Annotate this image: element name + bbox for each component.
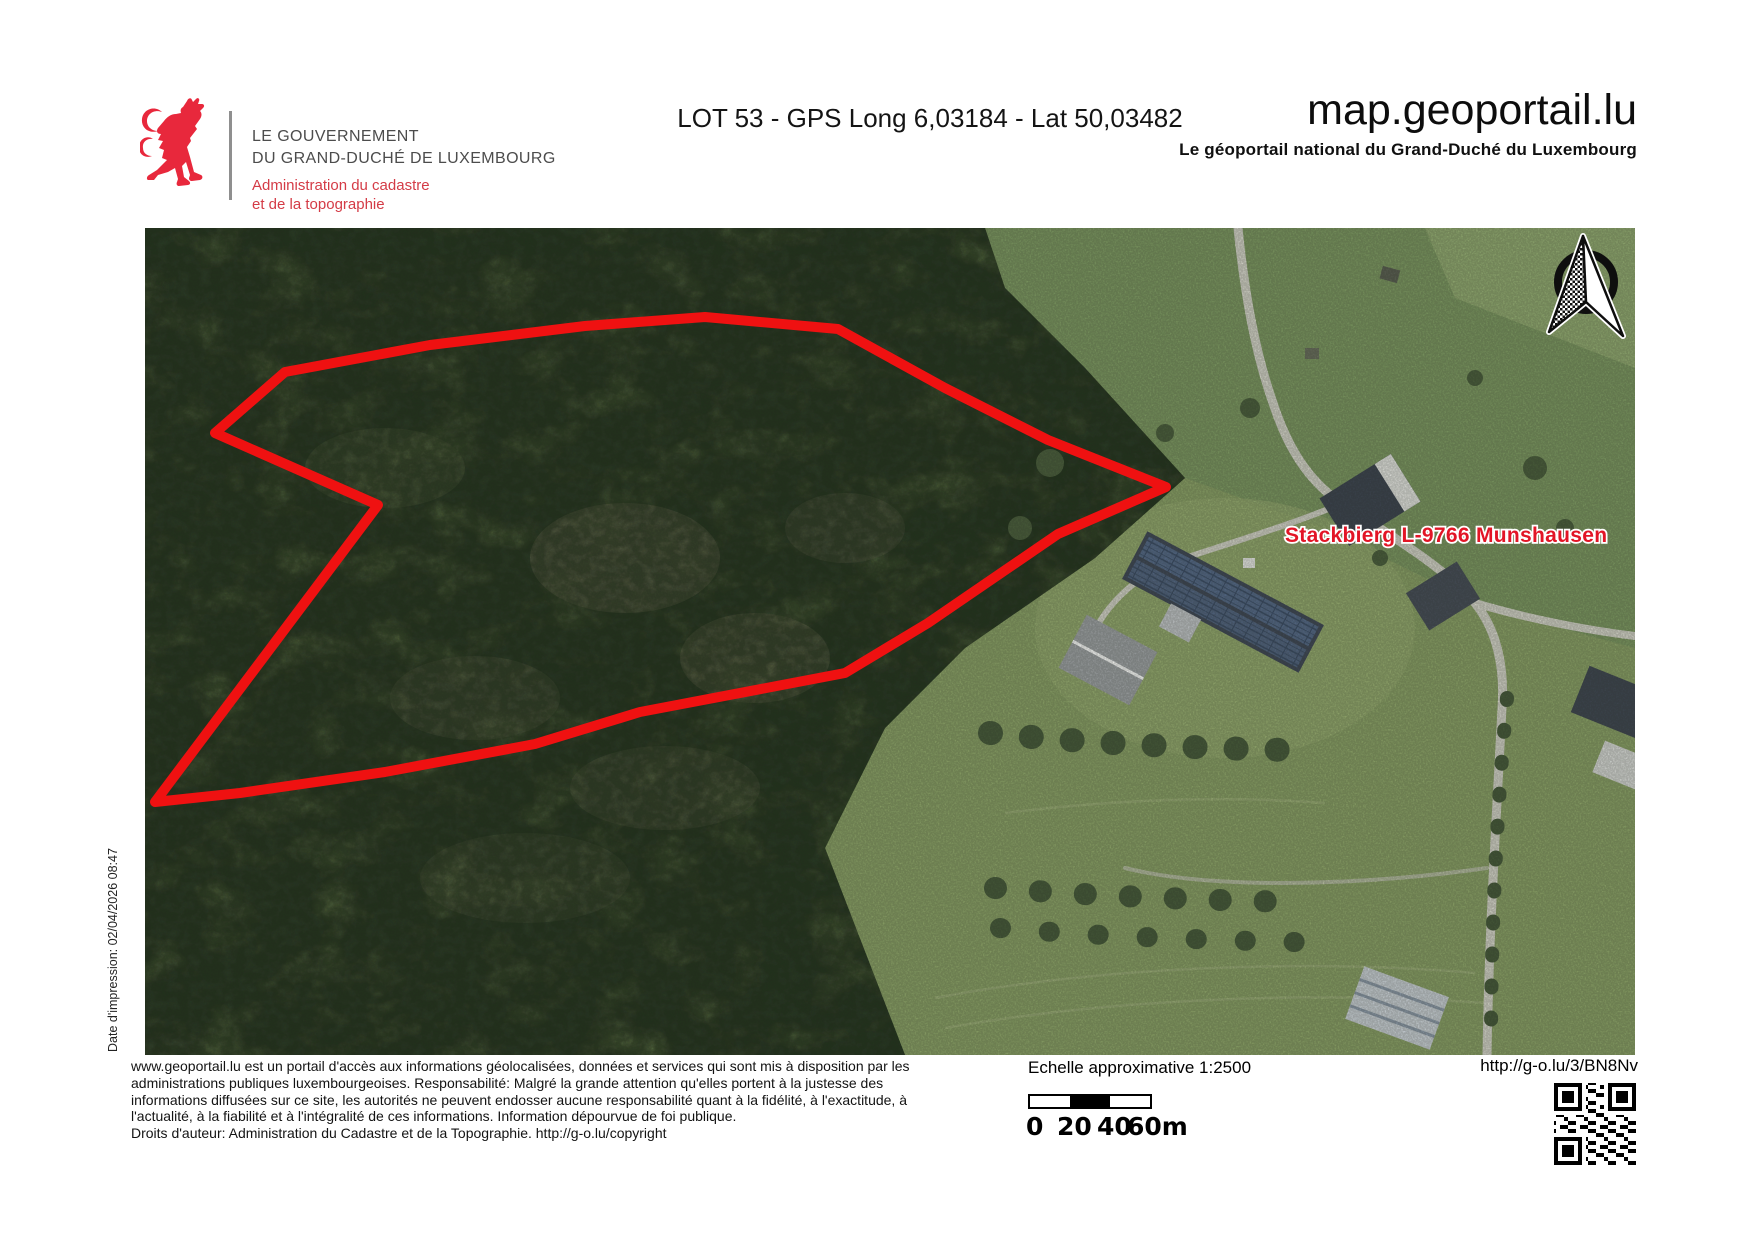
short-url: http://g-o.lu/3/BN8Nv — [1480, 1056, 1638, 1076]
disclaimer-line: www.geoportail.lu est un portail d'accès… — [131, 1058, 953, 1075]
luxembourg-lion-logo-icon — [140, 97, 216, 199]
disclaimer-line: administrations publiques luxembourgeois… — [131, 1075, 953, 1092]
disclaimer-line: informations diffusées sur ce site, les … — [131, 1092, 953, 1109]
scale-tick-20: 20 — [1057, 1112, 1092, 1141]
disclaimer: www.geoportail.lu est un portail d'accès… — [131, 1058, 953, 1142]
government-line2: DU GRAND-DUCHÉ DE LUXEMBOURG — [252, 148, 556, 170]
site-tagline: Le géoportail national du Grand-Duché du… — [1179, 140, 1637, 160]
disclaimer-line: l'actualité, à la fiabilité et à l'intég… — [131, 1108, 953, 1125]
scale-text: Echelle approximative 1:2500 — [1028, 1058, 1251, 1078]
administration-line1: Administration du cadastre — [252, 176, 556, 195]
qr-code — [1552, 1081, 1638, 1167]
scale-tick-60m: 60m — [1127, 1112, 1188, 1141]
print-date-note: Date d'impression: 02/04/2026 08:47 — [106, 848, 120, 1052]
site-name: map.geoportail.lu — [1307, 85, 1637, 135]
disclaimer-line: Droits d'auteur: Administration du Cadas… — [131, 1125, 953, 1142]
parcel-label: Stackbierg L-9766 Munshausen — [1285, 524, 1607, 547]
print-page: LE GOUVERNEMENT DU GRAND-DUCHÉ DE LUXEMB… — [0, 0, 1754, 1240]
aerial-map: Stackbierg L-9766 Munshausen — [145, 228, 1635, 1055]
logo-text-block: LE GOUVERNEMENT DU GRAND-DUCHÉ DE LUXEMB… — [252, 126, 556, 214]
document-title: LOT 53 - GPS Long 6,03184 - Lat 50,03482 — [600, 103, 1260, 134]
logo-divider — [229, 111, 232, 200]
scale-bar — [1028, 1094, 1152, 1109]
administration-line2: et de la topographie — [252, 195, 556, 214]
scale-tick-0: 0 — [1026, 1112, 1043, 1141]
government-line1: LE GOUVERNEMENT — [252, 126, 556, 148]
